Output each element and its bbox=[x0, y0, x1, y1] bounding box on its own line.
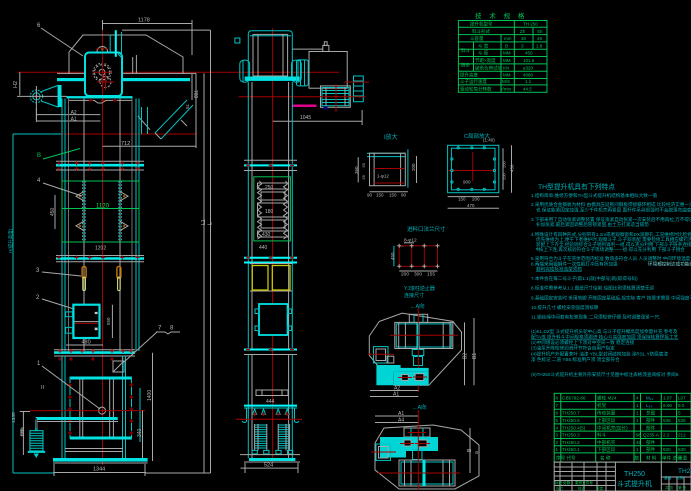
svg-text:mm: mm bbox=[504, 36, 512, 41]
svg-text:4080: 4080 bbox=[523, 73, 534, 78]
svg-text:A1: A1 bbox=[393, 392, 399, 398]
svg-text:节距×宽度: 节距×宽度 bbox=[475, 57, 496, 64]
svg-text:KN: KN bbox=[503, 65, 509, 70]
svg-text:11.钢丝绳中间若有松弛现象 二月须检修仔细 及时调整涨紧一: 11.钢丝绳中间若有松弛现象 二月须检修仔细 及时调整涨紧一只, bbox=[531, 314, 660, 321]
svg-text:300: 300 bbox=[414, 272, 422, 278]
svg-text:55: 55 bbox=[361, 174, 366, 179]
svg-text:B: B bbox=[37, 153, 41, 159]
svg-text:75: 75 bbox=[185, 104, 190, 110]
svg-text:A2: A2 bbox=[71, 110, 77, 116]
svg-text:360: 360 bbox=[354, 166, 359, 174]
svg-text:更改文件号: 更改文件号 bbox=[575, 480, 593, 485]
svg-text:提升高度: 提升高度 bbox=[460, 72, 478, 79]
svg-text:101.6: 101.6 bbox=[523, 58, 535, 63]
svg-text:B2: B2 bbox=[463, 353, 469, 359]
svg-text:150: 150 bbox=[389, 193, 397, 198]
svg-text:षे按上下连,再次核验符合斗子现场调整——组 得以充分利用: षे按上下连,再次核验符合斗子现场调整——组 得以充分利用 下部斗子锐合 bbox=[536, 246, 685, 253]
svg-text:7.本件会在每二号斗子(取1:1)就(中部号)就(取得号码): 7.本件会在每二号斗子(取1:1)就(中部号)就(取得号码) bbox=[531, 275, 638, 282]
svg-text:MM: MM bbox=[503, 51, 511, 56]
svg-text:8: 8 bbox=[556, 396, 559, 401]
svg-text:审定: 审定 bbox=[596, 486, 604, 491]
svg-text:传动装置: 传动装置 bbox=[597, 410, 616, 417]
svg-text:下部区段: 下部区段 bbox=[597, 446, 616, 453]
svg-text:212: 212 bbox=[678, 433, 686, 438]
svg-text:a: a bbox=[474, 451, 480, 454]
svg-text:1335: 1335 bbox=[11, 412, 17, 423]
svg-text:1.07: 1.07 bbox=[663, 396, 672, 401]
svg-text:部件: 部件 bbox=[646, 417, 656, 424]
svg-text:150: 150 bbox=[458, 197, 466, 202]
svg-text:1.8: 1.8 bbox=[536, 43, 543, 48]
svg-text:524: 524 bbox=[264, 463, 273, 469]
svg-text:顺利完成标准选型须知: 顺利完成标准选型须知 bbox=[536, 266, 582, 273]
svg-text:2.2: 2.2 bbox=[663, 433, 670, 438]
svg-text:4: 4 bbox=[636, 396, 639, 401]
svg-text:440: 440 bbox=[259, 245, 268, 251]
svg-text:环境都控制达成功能缩短: 环境都控制达成功能缩短 bbox=[648, 261, 691, 268]
svg-text:MM: MM bbox=[503, 58, 511, 63]
svg-text:II: II bbox=[41, 385, 45, 391]
svg-text:←A向: ←A向 bbox=[412, 403, 427, 411]
svg-text:数: 数 bbox=[635, 455, 640, 462]
svg-text:TH250.7: TH250.7 bbox=[562, 411, 580, 416]
svg-text:设计: 设计 bbox=[556, 486, 564, 491]
svg-text:漆 色标记 二道 YB5.标准用户须 须全部符合: 漆 色标记 二道 YB5.标准用户须 须全部符合 bbox=[531, 356, 620, 363]
svg-text:部件: 部件 bbox=[646, 446, 656, 453]
svg-text:450: 450 bbox=[50, 207, 56, 216]
svg-text:1202: 1202 bbox=[95, 246, 106, 252]
svg-text:535: 535 bbox=[663, 418, 671, 423]
svg-text:上部区段: 上部区段 bbox=[597, 417, 616, 424]
svg-text:630: 630 bbox=[678, 447, 686, 452]
svg-text:8.标准件需参考从1:1 图纸尺寸绘制 绘图比例须核算清楚无: 8.标准件需参考从1:1 图纸尺寸绘制 绘图比例须核算清楚无误 bbox=[531, 285, 654, 292]
svg-text:H(提升高度): H(提升高度) bbox=[7, 228, 14, 253]
svg-text:1: 1 bbox=[556, 447, 559, 452]
svg-text:TH250.6: TH250.6 bbox=[562, 418, 580, 423]
svg-text:螺栓 M24: 螺栓 M24 bbox=[597, 395, 617, 402]
svg-text:TH250.1: TH250.1 bbox=[562, 447, 580, 452]
svg-text:进料口法兰尺寸: 进料口法兰尺寸 bbox=[407, 225, 446, 233]
svg-text:1: 1 bbox=[636, 418, 639, 423]
svg-text:TH250.4(5): TH250.4(5) bbox=[562, 425, 586, 430]
svg-text:340: 340 bbox=[137, 428, 143, 437]
svg-text:A4: A4 bbox=[398, 418, 404, 424]
svg-text:46: 46 bbox=[636, 440, 642, 445]
svg-text:GB5782-86: GB5782-86 bbox=[562, 396, 586, 401]
svg-text:L07: L07 bbox=[678, 396, 686, 401]
svg-text:3: 3 bbox=[556, 433, 559, 438]
svg-text:4: 4 bbox=[556, 425, 559, 430]
svg-text:斗 宽: 斗 宽 bbox=[478, 42, 489, 49]
svg-text:补加张紧,最后紧固调整后管锁紧固,由土方打紧适当铺垫: 补加张紧,最后紧固调整后管锁紧固,由土方打紧适当铺垫 bbox=[536, 221, 649, 228]
svg-text:B1: B1 bbox=[472, 353, 478, 359]
svg-text:TH 250: TH 250 bbox=[523, 22, 538, 27]
svg-text:料斗: 料斗 bbox=[461, 47, 470, 54]
svg-text:B: B bbox=[505, 43, 508, 48]
svg-text:I放大: I放大 bbox=[384, 133, 398, 141]
svg-text:名 称: 名 称 bbox=[600, 455, 611, 462]
svg-text:L₂₄: L₂₄ bbox=[646, 403, 652, 408]
svg-text:(3)油泵升降检修润滑环节符合自用户指定: (3)油泵升降检修润滑环节符合自用户指定 bbox=[531, 345, 615, 352]
svg-text:第 张: 第 张 bbox=[678, 485, 687, 490]
svg-text:提升机型号: 提升机型号 bbox=[470, 21, 493, 28]
svg-text:1120: 1120 bbox=[96, 203, 110, 209]
svg-text:1400: 1400 bbox=[147, 390, 153, 401]
svg-text:96: 96 bbox=[636, 433, 642, 438]
svg-text:中间机壳(加长): 中间机壳(加长) bbox=[597, 424, 628, 431]
svg-text:1: 1 bbox=[636, 447, 639, 452]
svg-text:Zh: Zh bbox=[520, 29, 526, 34]
svg-text:M₂₄: M₂₄ bbox=[646, 396, 654, 401]
svg-text:630: 630 bbox=[663, 447, 671, 452]
svg-text:1344: 1344 bbox=[93, 467, 105, 473]
svg-text:44.5: 44.5 bbox=[523, 87, 532, 92]
svg-text:L: L bbox=[208, 222, 214, 225]
svg-text:YJ滚柱逆止器: YJ滚柱逆止器 bbox=[404, 285, 435, 292]
svg-text:链条: 链条 bbox=[461, 62, 470, 69]
svg-text:斗子运行速度: 斗子运行速度 bbox=[460, 78, 487, 85]
svg-text:H2: H2 bbox=[13, 81, 19, 88]
svg-text:料斗: 料斗 bbox=[597, 432, 607, 439]
svg-text:450: 450 bbox=[510, 164, 515, 172]
svg-text:1: 1 bbox=[636, 403, 639, 408]
svg-text:TH250: TH250 bbox=[624, 471, 645, 478]
svg-text:450: 450 bbox=[525, 51, 533, 56]
svg-text:TH250.0: TH250.0 bbox=[678, 468, 691, 475]
svg-text:斗式提升机: 斗式提升机 bbox=[617, 479, 652, 488]
svg-text:1-φ12: 1-φ12 bbox=[377, 174, 389, 179]
svg-text:破断负荷试验: 破断负荷试验 bbox=[475, 64, 502, 71]
svg-text:9.基础固定安装时 采用地脚 开降固定基础后,视实际 客户: 9.基础固定安装时 采用地脚 开降固定基础后,视实际 客户 按要求需要 中间强度… bbox=[531, 295, 691, 302]
svg-text:48: 48 bbox=[537, 36, 543, 41]
svg-text:料斗形式: 料斗形式 bbox=[472, 28, 490, 35]
svg-text:TH250.3: TH250.3 bbox=[562, 433, 580, 438]
svg-text:9.0: 9.0 bbox=[678, 403, 685, 408]
svg-text:1045: 1045 bbox=[300, 115, 311, 121]
svg-text:重量: 重量 bbox=[664, 475, 672, 480]
svg-text:150: 150 bbox=[376, 193, 384, 198]
svg-text:900: 900 bbox=[463, 180, 471, 185]
svg-text:200: 200 bbox=[411, 163, 416, 171]
svg-text:部件: 部件 bbox=[646, 439, 656, 446]
svg-text:斗容量: 斗容量 bbox=[470, 35, 484, 42]
svg-text:Q235-A: Q235-A bbox=[643, 433, 660, 438]
svg-text:6: 6 bbox=[556, 411, 559, 416]
svg-text:A1: A1 bbox=[71, 116, 77, 122]
svg-text:←A向: ←A向 bbox=[410, 302, 425, 310]
svg-text:90: 90 bbox=[367, 193, 373, 198]
svg-text:180: 180 bbox=[265, 209, 274, 215]
svg-text:(9)TH250斗式提升机主要外形安装尺寸见图中标注表格须查: (9)TH250斗式提升机主要外形安装尺寸见图中标注表格须查阅核对 参阅9. bbox=[531, 371, 680, 378]
svg-text:444: 444 bbox=[266, 399, 275, 405]
svg-text:55: 55 bbox=[361, 162, 366, 167]
svg-text:480: 480 bbox=[82, 340, 91, 346]
svg-text:比例: 比例 bbox=[676, 475, 684, 480]
svg-text:≥320: ≥320 bbox=[523, 65, 533, 70]
svg-text:标记 处数: 标记 处数 bbox=[555, 480, 571, 485]
svg-text:MM: MM bbox=[503, 73, 511, 78]
svg-text:机架: 机架 bbox=[597, 402, 607, 409]
svg-text:中部机壳: 中部机壳 bbox=[597, 439, 616, 446]
svg-text:5: 5 bbox=[678, 411, 681, 416]
svg-text:1.1: 1.1 bbox=[525, 79, 532, 84]
svg-text:连接尺寸: 连接尺寸 bbox=[404, 292, 424, 299]
svg-text:r/min: r/min bbox=[501, 87, 511, 92]
svg-text:技 术 规 格: 技 术 规 格 bbox=[475, 11, 527, 20]
svg-text:535: 535 bbox=[678, 418, 686, 423]
svg-text:L1: L1 bbox=[201, 219, 207, 225]
svg-text:90: 90 bbox=[401, 193, 407, 198]
svg-text:550: 550 bbox=[106, 317, 111, 325]
svg-text:校对: 校对 bbox=[578, 486, 586, 491]
svg-text:450: 450 bbox=[390, 252, 395, 260]
svg-text:驱动轮每分转数: 驱动轮每分转数 bbox=[460, 86, 492, 93]
svg-text:9.06: 9.06 bbox=[663, 403, 672, 408]
svg-text:斗 距: 斗 距 bbox=[478, 51, 489, 56]
svg-text:重量: 重量 bbox=[678, 455, 688, 462]
svg-text:2: 2 bbox=[556, 440, 559, 445]
svg-text:1178: 1178 bbox=[138, 18, 150, 24]
svg-text:也 保证能紧固定加强,至少千件机壳再紧固 面杆件吊具很强时不: 也 保证能紧固定加强,至少千件机壳再紧固 面杆件吊具很强时不会脱落弯曲变形损伤 bbox=[536, 207, 691, 214]
svg-text:1: 1 bbox=[636, 411, 639, 416]
svg-text:Sh: Sh bbox=[537, 29, 543, 34]
svg-text:总图: 总图 bbox=[646, 410, 656, 417]
svg-text:材 料: 材 料 bbox=[646, 455, 657, 462]
svg-text:200: 200 bbox=[472, 197, 480, 202]
svg-text:712: 712 bbox=[121, 141, 130, 147]
svg-text:250: 250 bbox=[265, 185, 274, 191]
svg-text:7: 7 bbox=[556, 403, 559, 408]
svg-text:(1:40): (1:40) bbox=[483, 138, 495, 143]
svg-text:200: 200 bbox=[502, 161, 507, 168]
svg-text:A1: A1 bbox=[398, 411, 404, 417]
svg-text:155: 155 bbox=[427, 272, 435, 278]
svg-text:M/S: M/S bbox=[502, 79, 510, 84]
svg-text:部件: 部件 bbox=[646, 424, 656, 431]
svg-text:10.提升几寸 螺栓安装强度须核算: 10.提升几寸 螺栓安装强度须核算 bbox=[531, 304, 599, 311]
svg-text:789: 789 bbox=[192, 90, 198, 99]
svg-text:5: 5 bbox=[556, 418, 559, 423]
svg-text:1.结构简单,维修方便和TH型斗式提升机结构基本相似大致一值: 1.结构简单,维修方便和TH型斗式提升机结构基本相似大致一值 bbox=[531, 192, 657, 199]
svg-text:30: 30 bbox=[521, 36, 527, 41]
svg-text:共 张: 共 张 bbox=[665, 485, 674, 490]
svg-text:430: 430 bbox=[262, 232, 271, 238]
svg-text:序号 代号: 序号 代号 bbox=[556, 455, 576, 462]
svg-text:200: 200 bbox=[401, 272, 409, 278]
svg-text:470: 470 bbox=[467, 203, 475, 208]
svg-text:TH型提升机具有下列特点: TH型提升机具有下列特点 bbox=[538, 182, 615, 191]
svg-text:880: 880 bbox=[19, 428, 24, 436]
svg-text:TH250.2: TH250.2 bbox=[562, 440, 580, 445]
svg-text:200: 200 bbox=[502, 173, 507, 180]
